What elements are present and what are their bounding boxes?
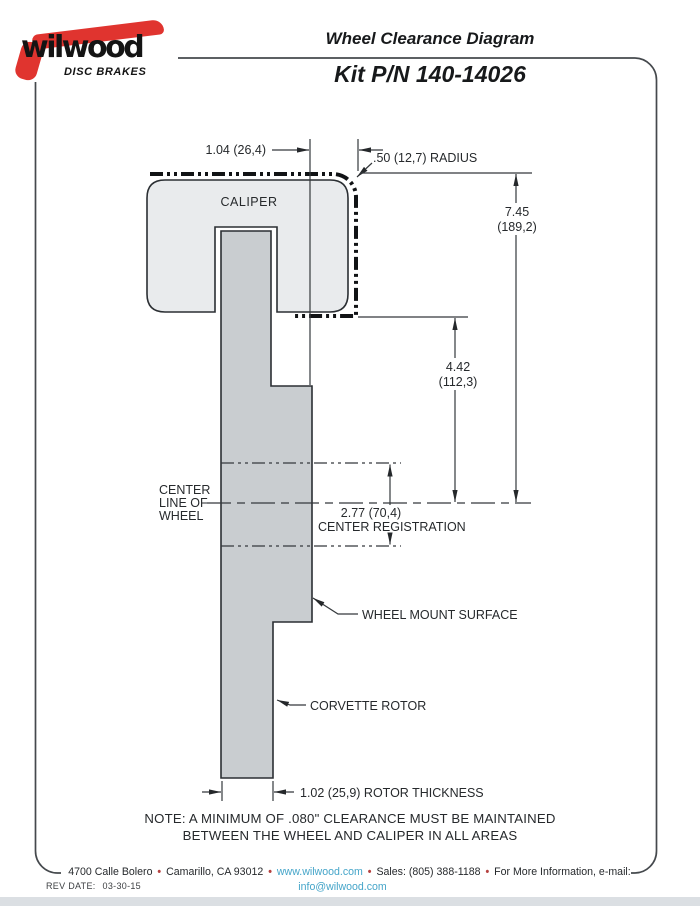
logo-tagline: DISC BRAKES — [64, 66, 146, 78]
kit-part-number: Kit P/N 140-14026 — [180, 61, 680, 88]
radius-leader-line — [357, 163, 372, 177]
footer-email-link[interactable]: info@wilwood.com — [298, 881, 386, 893]
rev-date-label: REV DATE: — [46, 881, 96, 891]
dim-overall-height-mm: (189,2) — [497, 220, 537, 234]
footer-separator: • — [155, 866, 163, 878]
footer-address: 4700 Calle Bolero — [68, 866, 152, 878]
center-line-label-1: CENTER — [159, 483, 210, 497]
center-line-label-3: WHEEL — [159, 509, 204, 523]
corvette-rotor-label: CORVETTE ROTOR — [310, 699, 426, 713]
wheel-mount-surface-leader — [313, 598, 358, 614]
footer-sales-phone: Sales: (805) 388-1188 — [376, 866, 480, 878]
wilwood-logo: wilwood DISC BRAKES — [20, 24, 178, 82]
dim-overall-height-in: 7.45 — [505, 205, 529, 219]
footer-separator: • — [366, 866, 374, 878]
clearance-note: NOTE: A MINIMUM OF .080" CLEARANCE MUST … — [0, 810, 700, 844]
clearance-note-line2: BETWEEN THE WHEEL AND CALIPER IN ALL ARE… — [0, 827, 700, 844]
dim-caliper-to-centerline-in: 4.42 — [446, 360, 470, 374]
dim-caliper-overhang-label: 1.04 (26,4) — [206, 143, 266, 157]
rev-date: REV DATE:03-30-15 — [46, 881, 148, 891]
logo-brand-text: wilwood — [21, 30, 142, 65]
rotor-shape — [221, 231, 312, 778]
page-title: Wheel Clearance Diagram — [180, 29, 680, 49]
footer-separator: • — [483, 866, 491, 878]
rev-date-value: 03-30-15 — [103, 881, 141, 891]
footer-website-link[interactable]: www.wilwood.com — [277, 866, 363, 878]
dim-caliper-to-centerline-mm: (112,3) — [439, 375, 478, 389]
wheel-clearance-diagram-page: CALIPER 1.04 (26,4) .50 (12,7) RADIUS 7.… — [0, 0, 700, 906]
footer-separator: • — [266, 866, 274, 878]
corvette-rotor-leader — [277, 700, 306, 705]
caliper-label: CALIPER — [221, 195, 278, 209]
dim-rotor-thickness-label: 1.02 (25,9) ROTOR THICKNESS — [300, 786, 484, 800]
wheel-mount-surface-label: WHEEL MOUNT SURFACE — [362, 608, 518, 622]
dim-corner-radius-label: .50 (12,7) RADIUS — [373, 151, 477, 165]
bottom-edge-strip — [0, 897, 700, 906]
footer-more-info: For More Information, e-mail: — [494, 866, 631, 878]
dim-center-registration-value: 2.77 (70,4) — [341, 506, 401, 520]
center-line-label-2: LINE OF — [159, 496, 208, 510]
footer-city: Camarillo, CA 93012 — [166, 866, 263, 878]
clearance-note-line1: NOTE: A MINIMUM OF .080" CLEARANCE MUST … — [0, 810, 700, 827]
clearance-diagram: CALIPER 1.04 (26,4) .50 (12,7) RADIUS 7.… — [0, 0, 700, 906]
dim-center-registration-label: CENTER REGISTRATION — [318, 520, 466, 534]
